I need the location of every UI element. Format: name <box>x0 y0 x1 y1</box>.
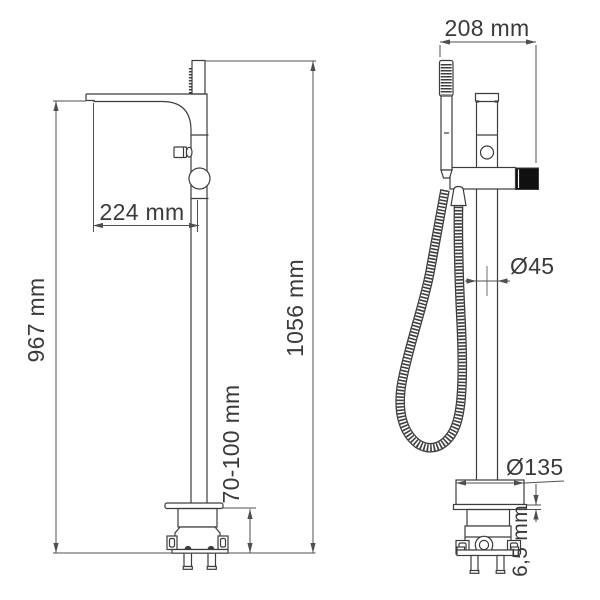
dim-total-height-label: 1056 mm <box>282 259 308 357</box>
dim-spout-height: 967 mm <box>23 101 86 553</box>
technical-drawing-canvas: 967 mm 1056 mm 224 mm 70-100 mm <box>0 0 600 600</box>
dim-column-diameter: Ø45 <box>465 253 554 296</box>
floor-base-side <box>165 503 228 569</box>
dim-spout-reach: 224 mm <box>93 103 199 232</box>
hose-nipple <box>451 187 466 206</box>
hand-shower <box>440 61 454 179</box>
front-view <box>400 61 538 574</box>
dim-spout-reach-label: 224 mm <box>100 199 185 225</box>
dim-floor-mount-range-label: 70-100 mm <box>218 384 244 503</box>
dim-top-width-label: 208 mm <box>445 15 530 41</box>
dim-column-diameter-label: Ø45 <box>510 253 554 279</box>
dim-top-width: 208 mm <box>440 15 536 163</box>
temperature-knob <box>516 168 539 190</box>
mixer-handle <box>189 168 210 189</box>
dim-base-diameter-label: Ø135 <box>506 454 563 480</box>
diverter-knob <box>174 147 192 158</box>
column-front <box>476 94 499 505</box>
dim-plate-thickness-label: 6,5 mm <box>509 505 532 577</box>
side-view <box>86 61 228 570</box>
shower-hose <box>400 190 462 448</box>
dim-spout-height-label: 967 mm <box>23 278 49 363</box>
dim-floor-mount-range: 70-100 mm <box>218 384 256 553</box>
cross-body <box>450 168 516 206</box>
cartridge-stem <box>191 61 205 95</box>
faucet-dimension-drawing: 967 mm 1056 mm 224 mm 70-100 mm <box>0 0 600 600</box>
